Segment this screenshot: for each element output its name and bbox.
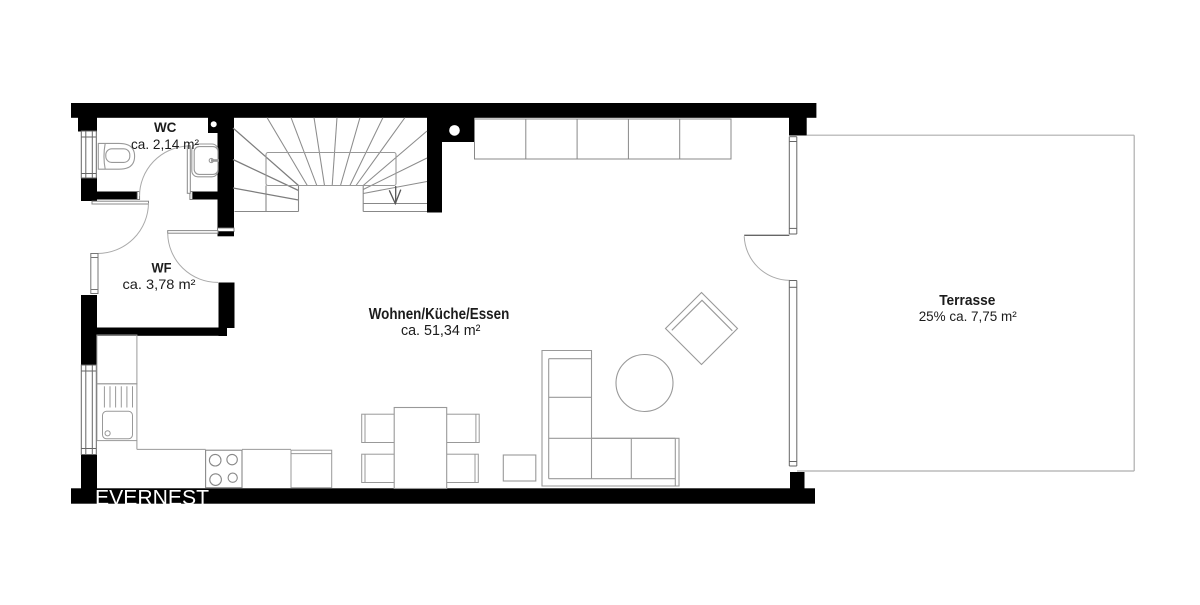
svg-text:25% ca. 7,75 m²: 25% ca. 7,75 m²	[919, 308, 1017, 324]
svg-text:WC: WC	[154, 120, 177, 135]
svg-text:Wohnen/Küche/Essen: Wohnen/Küche/Essen	[369, 306, 510, 323]
svg-text:ca. 3,78 m²: ca. 3,78 m²	[123, 276, 196, 292]
svg-text:Terrasse: Terrasse	[939, 293, 995, 309]
svg-text:ca. 51,34 m²: ca. 51,34 m²	[401, 322, 481, 339]
svg-text:EVERNEST: EVERNEST	[95, 485, 209, 509]
svg-text:ca. 2,14 m²: ca. 2,14 m²	[131, 136, 199, 152]
svg-text:WF: WF	[152, 261, 172, 276]
